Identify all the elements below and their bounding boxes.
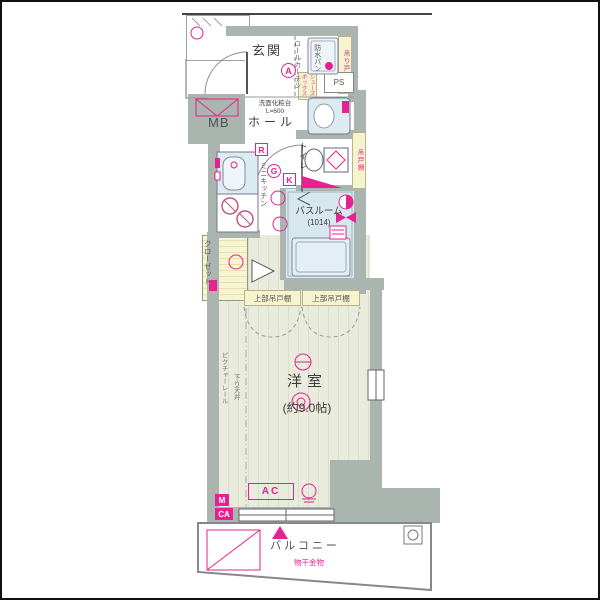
ac-box: AC <box>248 483 294 500</box>
room-size-label: (約9.0帖) <box>263 402 351 415</box>
floor-plan: 吊り戸棚 シューズボックス 吊戸棚 上部吊戸棚 上部吊戸棚 PS <box>0 0 600 600</box>
room-label: 洋室 <box>277 374 337 391</box>
outlet-ca-letter: CA <box>218 510 230 519</box>
room-door-mark <box>252 260 274 282</box>
mark-g: G <box>267 164 281 178</box>
downlight-1 <box>271 191 285 205</box>
balcony-slab <box>198 523 431 590</box>
lowered-ceiling-label: 下り天井 <box>232 374 239 412</box>
kitchen-outlet <box>215 172 220 180</box>
vanity-faucet <box>342 101 349 113</box>
bath-shower-box <box>330 226 346 239</box>
bath-door-mark <box>298 192 310 205</box>
washer-drain <box>325 62 333 70</box>
ac-label: AC <box>262 486 280 497</box>
bathtub <box>292 238 350 276</box>
corridor-symbol <box>191 27 203 39</box>
mark-k: K <box>283 173 296 186</box>
genkan-label: 玄関 <box>252 44 282 58</box>
mark-k-letter: K <box>286 175 292 185</box>
cabinet-swag-right <box>302 307 360 337</box>
outlet-m: M <box>215 494 229 506</box>
bathroom-label: バスルーム <box>286 207 352 217</box>
closet-symbol <box>229 255 243 269</box>
hall-label: ホール <box>248 116 296 129</box>
closet-label: クローゼット <box>203 240 211 298</box>
kitchen-gas-tap <box>215 158 220 168</box>
toilet-door-mark <box>302 176 342 188</box>
plan-linework <box>2 2 600 600</box>
waterproof-pan-label: 防水パン <box>313 44 321 64</box>
mark-r: R <box>255 143 268 156</box>
drying-hardware-label: 物干金物 <box>281 559 337 567</box>
roll-curtain-label: ロールカーテン <box>293 40 301 80</box>
hatch-ticks <box>192 18 222 26</box>
outlet-symbol <box>302 484 316 498</box>
balcony-fixture <box>404 526 422 544</box>
mini-kitchen-label: ミニキッチン <box>259 162 267 236</box>
outlet-m-letter: M <box>219 496 226 505</box>
cabinet-swag-left <box>244 307 301 337</box>
mailbox-symbol <box>196 99 238 116</box>
mb-label: MB <box>208 116 230 130</box>
outlet-base-lines <box>302 499 316 502</box>
toilet-label: トイレ <box>298 142 307 186</box>
vanity-label-1: 洗面化粧台 <box>248 100 302 107</box>
stove-unit <box>217 194 258 232</box>
downlight-2 <box>273 217 287 231</box>
bathroom-size-label: (1014) <box>286 219 352 228</box>
mark-g-letter: G <box>271 166 278 176</box>
genkan-mark-letter: A <box>285 66 292 76</box>
balcony-label: バルコニー <box>260 540 350 552</box>
mailbox-flap <box>196 99 238 116</box>
entry-door-arc <box>205 52 247 94</box>
vanity-bowl <box>314 104 334 128</box>
picture-rail-label: ピクチャーレール <box>220 352 227 434</box>
outlet-ca: CA <box>215 508 233 520</box>
mark-r-letter: R <box>258 145 264 155</box>
